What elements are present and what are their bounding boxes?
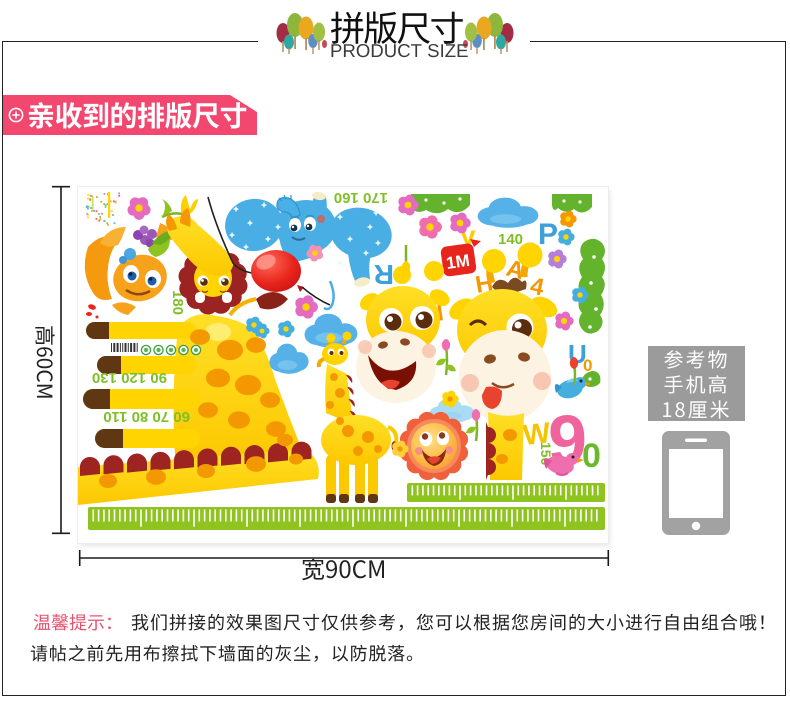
svg-text:1M: 1M [445,251,471,273]
svg-text:170 160: 170 160 [334,189,388,206]
svg-text:P: P [538,218,558,251]
svg-text:0: 0 [583,356,592,375]
svg-text:140: 140 [498,231,523,248]
svg-text:60 70 80 110: 60 70 80 110 [103,408,190,425]
svg-text:0: 0 [582,437,601,475]
svg-text:90 120 130: 90 120 130 [92,369,167,386]
svg-text:R: R [374,259,394,290]
